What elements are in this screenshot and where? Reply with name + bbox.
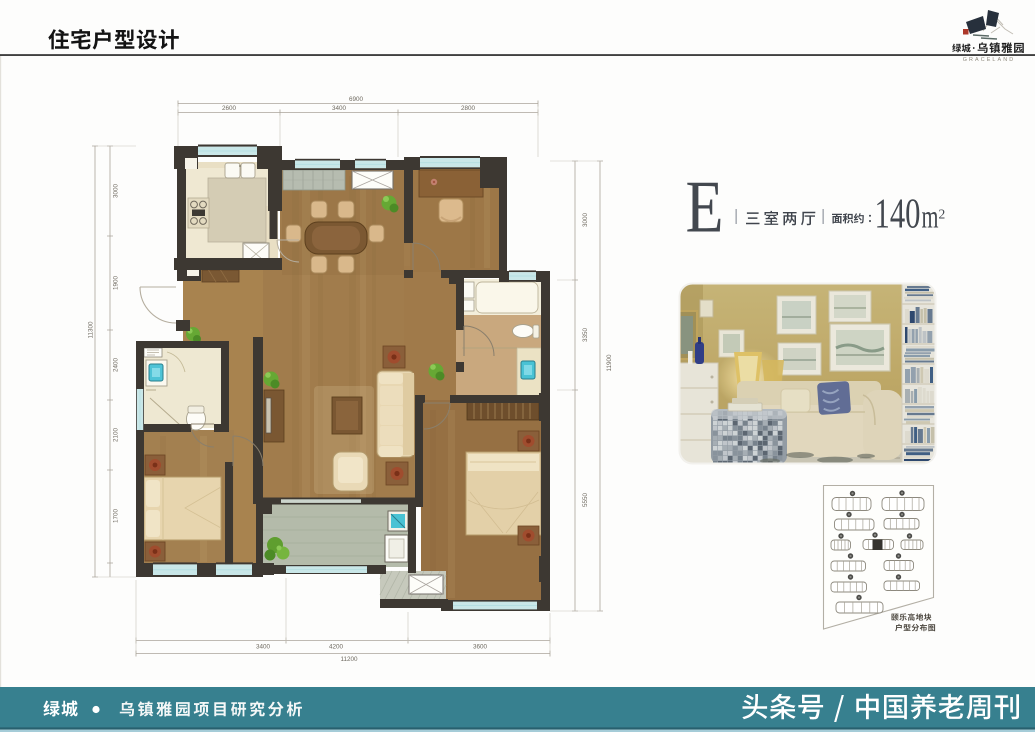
svg-text:2600: 2600	[222, 105, 237, 112]
svg-text:3000: 3000	[113, 184, 120, 199]
svg-text:3400: 3400	[256, 644, 271, 651]
svg-text:3600: 3600	[473, 644, 488, 651]
svg-text:11200: 11200	[340, 656, 358, 663]
svg-text:m: m	[922, 200, 939, 236]
svg-text:11300: 11300	[88, 321, 95, 339]
svg-text:2: 2	[939, 207, 946, 222]
svg-text:3400: 3400	[332, 105, 347, 112]
svg-text:E: E	[686, 167, 724, 249]
svg-text:4200: 4200	[329, 644, 344, 651]
svg-text:2400: 2400	[113, 358, 120, 373]
svg-text:1700: 1700	[113, 509, 120, 524]
svg-text:3350: 3350	[582, 328, 589, 343]
svg-text:5550: 5550	[582, 493, 589, 508]
svg-text:140: 140	[875, 192, 921, 238]
svg-text:2100: 2100	[113, 428, 120, 443]
svg-text:11900: 11900	[606, 354, 613, 372]
svg-text:3000: 3000	[582, 213, 589, 228]
svg-text:2800: 2800	[461, 105, 476, 112]
svg-text:6900: 6900	[349, 96, 364, 103]
svg-text:GRACELAND: GRACELAND	[963, 57, 1015, 63]
svg-text:1900: 1900	[113, 276, 120, 291]
